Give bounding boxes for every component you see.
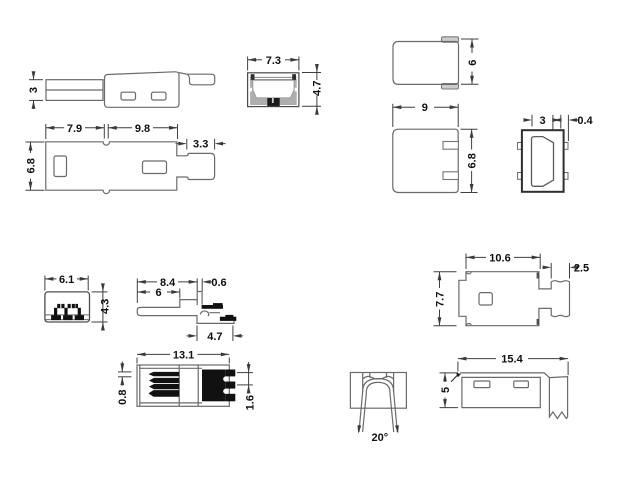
- svg-text:6: 6: [467, 60, 479, 66]
- svg-text:0.8: 0.8: [117, 390, 129, 405]
- svg-text:3: 3: [539, 115, 545, 127]
- svg-text:0.6: 0.6: [211, 277, 226, 289]
- svg-text:1.6: 1.6: [245, 395, 257, 410]
- svg-text:6.8: 6.8: [25, 158, 37, 173]
- svg-text:20°: 20°: [371, 432, 388, 444]
- svg-text:4.7: 4.7: [312, 81, 324, 96]
- svg-text:5: 5: [440, 387, 452, 393]
- svg-text:7.3: 7.3: [266, 55, 281, 67]
- svg-text:7.7: 7.7: [434, 292, 446, 307]
- svg-text:9.8: 9.8: [135, 123, 150, 135]
- svg-text:6.1: 6.1: [59, 274, 74, 286]
- svg-text:13.1: 13.1: [173, 349, 194, 361]
- svg-text:2.5: 2.5: [574, 262, 589, 274]
- svg-text:4.3: 4.3: [100, 299, 112, 314]
- svg-text:10.6: 10.6: [489, 252, 510, 264]
- svg-text:15.4: 15.4: [501, 354, 523, 366]
- svg-text:6: 6: [155, 287, 161, 299]
- svg-text:0.4: 0.4: [577, 115, 593, 127]
- svg-text:4.7: 4.7: [207, 331, 222, 343]
- svg-text:3: 3: [28, 87, 40, 93]
- svg-text:3.3: 3.3: [193, 138, 208, 150]
- svg-text:9: 9: [422, 102, 428, 114]
- svg-text:8.4: 8.4: [160, 277, 176, 289]
- svg-text:6.8: 6.8: [466, 153, 478, 168]
- svg-text:7.9: 7.9: [67, 123, 82, 135]
